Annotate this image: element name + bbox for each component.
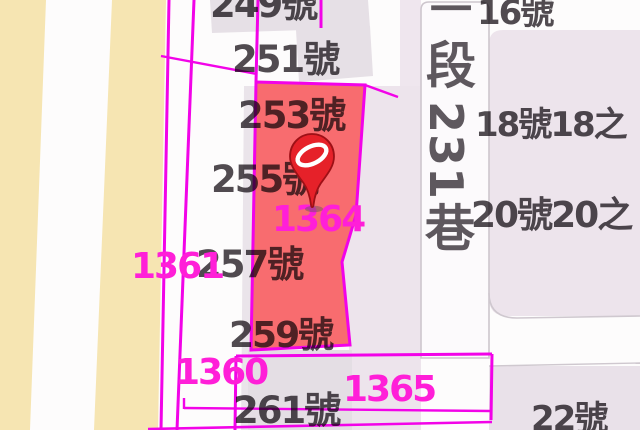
block-upper-right bbox=[489, 30, 640, 316]
map-tiles bbox=[0, 0, 640, 430]
block-lower-right bbox=[489, 366, 640, 430]
street-name-char-1: 一 bbox=[427, 0, 475, 32]
pin-shadow bbox=[305, 206, 323, 212]
boundary-line bbox=[235, 356, 236, 430]
boundary-line bbox=[491, 354, 492, 420]
street-name-char-2: 段 bbox=[426, 40, 474, 93]
selected-parcel-polygon[interactable] bbox=[251, 82, 365, 350]
street-name-number: 231 bbox=[420, 101, 471, 200]
building-patch-upper bbox=[296, 26, 373, 82]
boundary-line bbox=[236, 354, 492, 356]
boundary-line bbox=[256, 0, 258, 82]
building-patch-lower bbox=[248, 350, 352, 430]
map-canvas[interactable]: 249號 251號 253號 255號 257號 259號 261號 16號 1… bbox=[0, 0, 640, 430]
street-name-char-4: 巷 bbox=[425, 203, 473, 256]
